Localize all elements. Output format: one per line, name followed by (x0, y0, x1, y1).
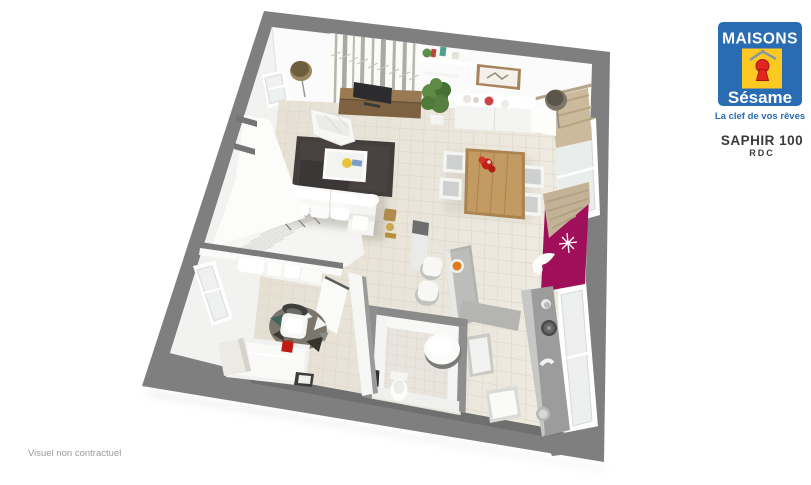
svg-text:SAPHIR 100: SAPHIR 100 (721, 133, 803, 148)
svg-text:Sésame: Sésame (728, 88, 792, 107)
svg-text:La clef de vos rêves: La clef de vos rêves (715, 111, 805, 122)
svg-text:MAISONS: MAISONS (722, 31, 798, 48)
svg-text:Visuel non contractuel: Visuel non contractuel (28, 448, 121, 459)
svg-text:RDC: RDC (749, 148, 775, 158)
